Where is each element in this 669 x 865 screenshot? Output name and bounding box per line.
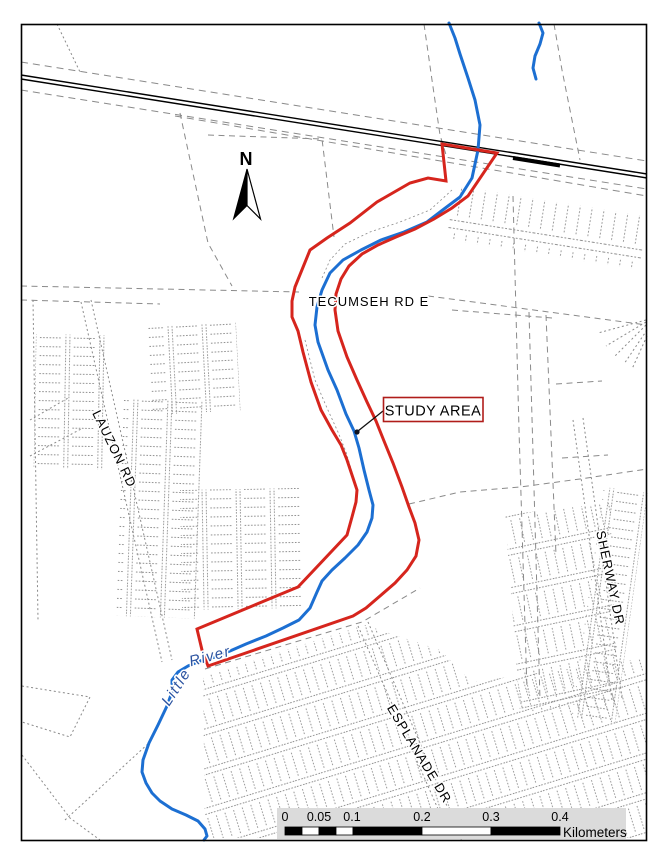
texture-rect: [447, 186, 648, 270]
texture-rect: [34, 334, 106, 469]
scalebar-segment: [422, 827, 491, 835]
parcel-line: [180, 113, 232, 286]
parcel-line: [424, 24, 447, 158]
parcel-line: [606, 322, 646, 346]
scalebar-segment: [491, 827, 560, 835]
scalebar-segment: [302, 827, 319, 835]
railroad-track: [21, 75, 647, 174]
north-arrow-right-half: [247, 169, 261, 219]
study-area-leader-dot: [354, 429, 359, 434]
scalebar-segment: [319, 827, 336, 835]
tecumseh-rd-label: TECUMSEH RD E: [309, 294, 430, 309]
scalebar-tick-label: 0: [282, 810, 289, 824]
north-arrow: N: [234, 149, 261, 219]
parcel-line: [65, 742, 150, 820]
scalebar-tick-label: 0.1: [343, 810, 360, 824]
parcel-line: [22, 686, 90, 737]
little-river-label-word1: Little: [158, 666, 194, 709]
parcel-line: [21, 62, 647, 161]
parcel-line: [21, 300, 160, 304]
parcel-line: [428, 296, 647, 325]
parcel-line: [562, 455, 608, 458]
parcel-line: [21, 286, 299, 292]
river-tributary-line: [533, 23, 543, 79]
parcel-line: [452, 310, 552, 318]
parcel-line: [322, 190, 452, 278]
scalebar-segment: [285, 827, 302, 835]
study-area-map: 00.050.10.20.30.4Kilometers N TECUMSEH R…: [0, 0, 669, 865]
parcel-line: [554, 24, 580, 160]
texture-block: [34, 334, 106, 469]
parcel-line: [208, 135, 334, 237]
railroad-layer: [21, 75, 647, 178]
parcel-line: [614, 325, 646, 357]
parcel-line: [57, 24, 80, 72]
parcel-line: [598, 320, 646, 333]
parcel-line: [632, 336, 647, 369]
map-page: 00.050.10.20.30.4Kilometers N TECUMSEH R…: [0, 0, 669, 865]
scalebar: 00.050.10.20.30.4Kilometers: [277, 808, 627, 840]
texture-block: [447, 186, 648, 270]
north-arrow-left-half: [234, 169, 248, 219]
scalebar-unit-label: Kilometers: [563, 825, 627, 840]
north-arrow-label: N: [240, 149, 253, 169]
parcel-line: [22, 755, 100, 840]
scalebar-segment: [336, 827, 353, 835]
study-area-label: STUDY AREA: [385, 404, 482, 420]
scalebar-tick-label: 0.2: [413, 810, 430, 824]
scalebar-segment: [353, 827, 422, 835]
study-area-callout: STUDY AREA: [384, 398, 484, 422]
parcel-line: [21, 90, 647, 189]
scalebar-tick-label: 0.05: [307, 810, 331, 824]
scalebar-tick-label: 0.4: [551, 810, 568, 824]
scalebar-tick-label: 0.3: [482, 810, 499, 824]
parcel-line: [556, 381, 602, 384]
